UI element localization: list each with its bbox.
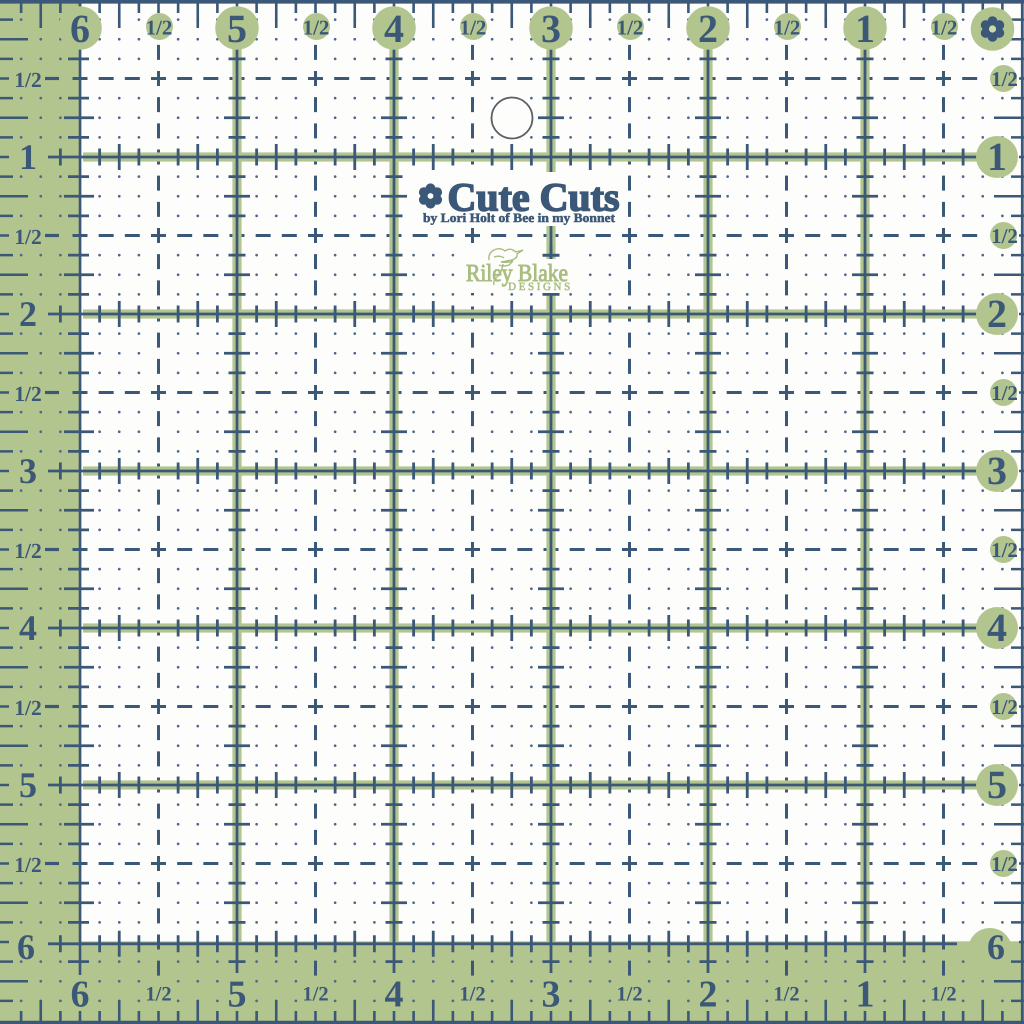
svg-text:1: 1 bbox=[855, 6, 875, 51]
svg-text:1/2: 1/2 bbox=[145, 983, 171, 1005]
svg-text:1/2: 1/2 bbox=[14, 382, 41, 406]
svg-text:4: 4 bbox=[19, 608, 37, 648]
svg-text:6: 6 bbox=[71, 973, 90, 1015]
svg-text:4: 4 bbox=[987, 605, 1007, 650]
svg-text:1/2: 1/2 bbox=[991, 538, 1018, 562]
svg-text:1/2: 1/2 bbox=[302, 983, 328, 1005]
svg-text:1/2: 1/2 bbox=[991, 381, 1018, 405]
svg-text:1: 1 bbox=[856, 973, 875, 1015]
svg-text:6: 6 bbox=[70, 6, 90, 51]
svg-text:1/2: 1/2 bbox=[931, 16, 958, 40]
svg-text:4: 4 bbox=[384, 6, 404, 51]
svg-text:1/2: 1/2 bbox=[146, 16, 173, 40]
svg-text:by Lori Holt of Bee in my Bonn: by Lori Holt of Bee in my Bonnet bbox=[423, 211, 616, 225]
svg-text:1/2: 1/2 bbox=[303, 16, 330, 40]
svg-text:3: 3 bbox=[541, 6, 561, 51]
svg-text:1/2: 1/2 bbox=[930, 983, 956, 1005]
svg-text:1/2: 1/2 bbox=[991, 224, 1018, 248]
svg-text:5: 5 bbox=[228, 973, 247, 1015]
svg-text:2: 2 bbox=[699, 973, 718, 1015]
svg-text:5: 5 bbox=[227, 6, 247, 51]
svg-text:1/2: 1/2 bbox=[459, 983, 485, 1005]
svg-text:1/2: 1/2 bbox=[773, 983, 799, 1005]
svg-text:1/2: 1/2 bbox=[991, 695, 1018, 719]
svg-text:6: 6 bbox=[987, 927, 1005, 967]
svg-text:DESIGNS: DESIGNS bbox=[508, 281, 573, 293]
svg-text:5: 5 bbox=[987, 762, 1007, 807]
svg-text:1/2: 1/2 bbox=[14, 696, 41, 720]
svg-text:1/2: 1/2 bbox=[14, 225, 41, 249]
svg-text:1/2: 1/2 bbox=[14, 68, 41, 92]
svg-text:6: 6 bbox=[17, 927, 35, 967]
svg-text:1/2: 1/2 bbox=[991, 67, 1018, 91]
svg-text:1/2: 1/2 bbox=[774, 16, 801, 40]
svg-text:1/2: 1/2 bbox=[14, 853, 41, 877]
svg-text:2: 2 bbox=[987, 291, 1007, 336]
svg-text:3: 3 bbox=[19, 451, 37, 491]
svg-text:3: 3 bbox=[987, 448, 1007, 493]
svg-text:1/2: 1/2 bbox=[991, 852, 1018, 876]
svg-text:2: 2 bbox=[698, 6, 718, 51]
svg-text:1/2: 1/2 bbox=[616, 983, 642, 1005]
svg-text:1/2: 1/2 bbox=[14, 539, 41, 563]
svg-text:3: 3 bbox=[542, 973, 561, 1015]
svg-text:1: 1 bbox=[19, 137, 37, 177]
svg-text:5: 5 bbox=[19, 765, 37, 805]
svg-text:1/2: 1/2 bbox=[617, 16, 644, 40]
svg-text:2: 2 bbox=[19, 294, 37, 334]
svg-text:1/2: 1/2 bbox=[460, 16, 487, 40]
svg-text:4: 4 bbox=[385, 973, 404, 1015]
svg-text:1: 1 bbox=[987, 134, 1007, 179]
